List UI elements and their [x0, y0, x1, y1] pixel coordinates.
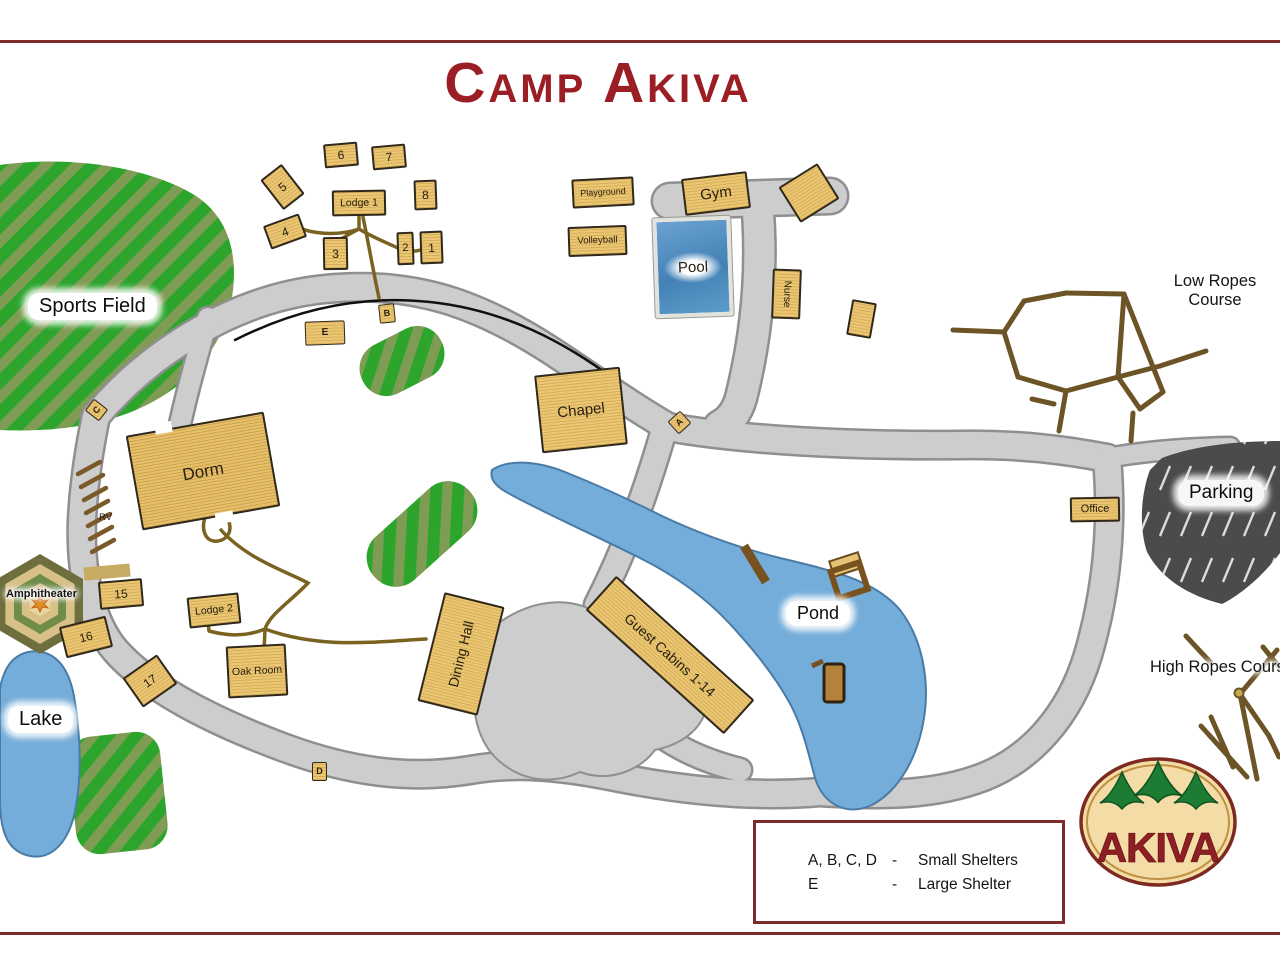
cabin-6-label: 6 [337, 149, 345, 162]
cabin-4-label: 4 [280, 225, 290, 239]
cabin-2-label: 2 [402, 243, 409, 254]
shelter-c-label: C [91, 405, 102, 416]
oak-room: Oak Room [226, 643, 289, 698]
legend-row-small-shelters: A, B, C, D - Small Shelters [808, 852, 1062, 870]
dining-hall-label: Dining Hall [446, 619, 476, 688]
lodge-1: Lodge 1 [332, 190, 386, 217]
cabin-6: 6 [323, 142, 359, 169]
cabin-7-label: 7 [385, 151, 393, 164]
parking-area [1142, 441, 1280, 604]
pool: Pool [652, 216, 733, 319]
rv-label: RV [99, 512, 112, 523]
shelter-d: D [312, 762, 327, 781]
volleyball-label: Volleyball [577, 236, 617, 247]
cabin-2: 2 [396, 232, 414, 266]
low-ropes-lines [953, 293, 1206, 441]
nurse: Nurse [771, 269, 802, 320]
cabin-15: 15 [98, 578, 144, 610]
lake-area [0, 651, 80, 856]
green-patch-lake [66, 730, 170, 857]
cabin-5-label: 5 [276, 180, 289, 194]
shelter-b-label: B [383, 309, 390, 319]
volleyball: Volleyball [567, 225, 627, 257]
legend-row-large-shelter: E - Large Shelter [808, 876, 1062, 894]
shelter-d-label: D [316, 767, 323, 776]
nurse-label: Nurse [781, 280, 792, 307]
cabin-17-label: 17 [141, 672, 159, 689]
pool-label: Pool [663, 250, 722, 283]
chapel-label: Chapel [557, 400, 606, 420]
lodge-2: Lodge 2 [187, 592, 242, 628]
dorm-label: Dorm [181, 459, 225, 483]
high-ropes-label: High Ropes Course [1150, 658, 1280, 677]
lake-label: Lake [8, 706, 73, 733]
cabin-16-label: 16 [78, 630, 94, 645]
sports-field-label: Sports Field [28, 293, 157, 320]
parking-label: Parking [1178, 480, 1264, 506]
cabin-3: 3 [323, 237, 349, 270]
oak-room-label: Oak Room [232, 664, 283, 677]
cabin-8-label: 8 [422, 189, 429, 201]
pond-label: Pond [786, 601, 850, 626]
lodge-1-label: Lodge 1 [340, 197, 378, 208]
logo-text: AKIVA [1097, 824, 1220, 871]
playground: Playground [571, 176, 634, 208]
shelter-a-label: A [674, 417, 685, 428]
cabin-15-label: 15 [114, 587, 128, 600]
playground-label: Playground [580, 187, 626, 198]
cabin-1-label: 1 [428, 241, 435, 253]
amphitheater-label: Amphitheater [6, 588, 77, 600]
green-patch-upper [351, 317, 454, 405]
office-label: Office [1081, 504, 1110, 515]
legend-box: A, B, C, D - Small Shelters E - Large Sh… [753, 820, 1065, 924]
camp-map-page: Camp Akiva [0, 0, 1280, 971]
cabin-1: 1 [419, 231, 443, 265]
low-ropes-label: Low Ropes Course [1140, 272, 1280, 310]
office: Office [1070, 497, 1120, 523]
cabin-8: 8 [413, 180, 437, 211]
akiva-logo: AKIVA [1081, 759, 1235, 885]
gym-label: Gym [699, 184, 732, 203]
chapel: Chapel [534, 367, 628, 454]
shelter-b: B [378, 303, 396, 324]
green-patch-middle [355, 470, 489, 599]
shelter-e-label: E [321, 328, 328, 338]
cabin-3-label: 3 [332, 247, 339, 259]
lodge-2-label: Lodge 2 [195, 603, 234, 617]
cabin-7: 7 [371, 144, 407, 171]
shelter-e: E [305, 320, 346, 345]
